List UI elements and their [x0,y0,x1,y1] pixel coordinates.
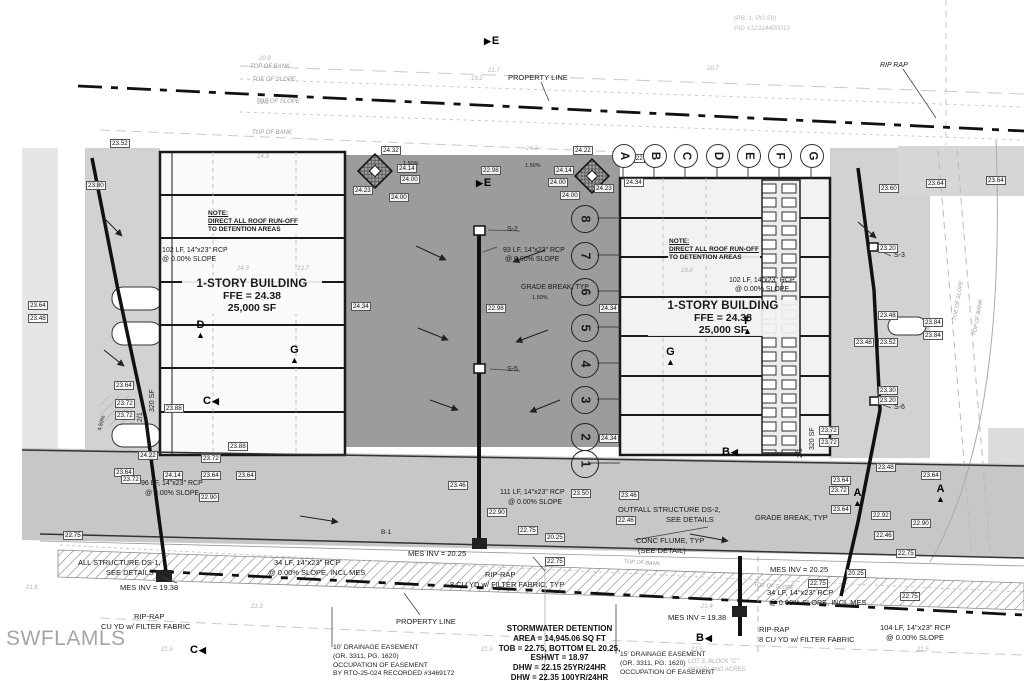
unit-number: 2 [578,434,592,441]
section-marker-A: A▲ [936,484,945,504]
elevation-callout: 21.5 [916,647,930,654]
elevation-callout: 23.88 [164,404,184,413]
elevation-callout: 22.90 [911,519,931,528]
section-letter: E [492,36,499,47]
elevation-callout: 22.46 [616,516,636,525]
annotation: GRADE BREAK, TYP [755,514,828,522]
grid-letter: G [806,152,818,161]
elevation-callout: 24.3 [256,154,270,161]
elevation-callout: 23.72 [819,438,839,447]
annotation: TOE OF SLOPE [252,77,296,84]
annotation: 4.50% [97,415,107,432]
annotation: RIP-RAP [134,613,164,621]
right-building-label: 1-STORY BUILDING FFE = 24.38 25,000 SF [648,300,798,336]
annotation: OUTFALL STRUCTURE DS-2, [618,506,721,514]
annotation: MES INV = 19.38 [120,584,178,592]
elevation-callout: 23.60 [879,184,899,193]
annotation: @ 0.00% SLOPE, INCL MES [769,599,866,607]
annotation: TOE OF SLOPE [256,99,300,106]
annotation: TOP OF BANK [250,64,290,71]
annotation: SEE DETAILS [666,516,714,524]
annotation: @ 0.00% SLOPE [505,256,559,264]
unit-bubble-2: 2 [571,423,599,451]
annotation: @ 0.00% SLOPE [162,256,216,264]
unit-bubble-7: 7 [571,242,599,270]
elevation-callout: 22.92 [871,511,891,520]
annotation: 8 CU YD w/ FILTER FABRIC, TYP [450,581,564,589]
elevation-callout: 23.84 [923,318,943,327]
elevation-callout: 23.72 [115,399,135,408]
elevation-callout: 23.64 [921,471,941,480]
elevation-callout: 23.64 [831,505,851,514]
annotation: PROPERTY LINE [508,74,568,82]
elevation-callout: 21.5 [480,647,494,654]
elevation-callout: 22.75 [63,531,83,540]
elevation-callout: 23.72 [819,426,839,435]
unit-bubble-8: 8 [571,205,599,233]
unit-bubble-5: 5 [571,314,599,342]
annotation: PROPERTY LINE [396,618,456,626]
elevation-callout: 24.23 [353,186,373,195]
annotation: 102 LF, 14"x23" RCP [162,247,228,255]
annotation: TOE OF SLOPE [952,280,965,321]
elevation-callout: 23.72 [121,475,141,484]
section-marker-G: G▲ [666,347,675,367]
elevation-callout: 23.46 [448,481,468,490]
elevation-callout: 22.90 [487,508,507,517]
elevation-callout: 21.3 [250,604,264,611]
elevation-callout: 23.46 [619,491,639,500]
annotation: S-5 [507,366,518,374]
annotation: @ 0.00% SLOPE, INCL MES [268,569,365,577]
annotation: @ 0.00% SLOPE [735,286,789,294]
section-arrow-icon: ▲ [743,327,752,336]
annotation: 8 CU YD w/ FILTER FABRIC [759,636,855,644]
grid-bubble-A: A [612,144,636,168]
elevation-callout: 24.00 [560,191,580,200]
section-arrow-icon: ▲ [290,356,299,365]
elevation-callout: 24.32 [381,146,401,155]
section-marker-E: ▶E [476,178,491,189]
elevation-callout: 23.8 [680,268,694,275]
elevation-callout: 20.25 [846,569,866,578]
elevation-callout: 24.3 [236,266,250,273]
section-arrow-icon: ◀ [731,448,738,457]
grid-letter: B [649,152,661,160]
annotation: 320 SF [149,389,157,412]
grid-bubble-F: F [768,144,792,168]
elevation-callout: 21.8 [25,585,39,592]
elevation-callout: 23.7 [296,266,310,273]
grid-bubble-G: G [800,144,824,168]
annotation-layer: (PB. 1, PG 59) PID #12314400010 NOTE: DI… [0,0,1024,681]
elevation-callout: 24.00 [400,175,420,184]
section-marker-E: ▶E [484,36,499,47]
section-arrow-icon: ▲ [936,495,945,504]
elevation-callout: 24.34 [599,434,619,443]
annotation: 34 LF, 14"x23" RCP [274,559,340,567]
annotation: 320 SF [809,427,817,450]
unit-bubble-4: 4 [571,350,599,378]
elevation-callout: 23.88 [228,442,248,451]
elevation-callout: 23.64 [236,471,256,480]
elevation-callout: 23.84 [923,331,943,340]
elevation-callout: 21.7 [487,68,501,75]
section-marker-F: F▲ [743,316,752,336]
section-marker-D: D▲ [196,320,205,340]
annotation: S-6 [894,404,905,412]
elevation-callout: 23.48 [878,311,898,320]
elevation-callout: 21.4 [700,604,714,611]
section-arrow-icon: ▶ [476,179,483,188]
annotation: 1.50% [525,163,541,169]
unit-bubble-1: 1 [571,450,599,478]
elevation-callout: 23.48 [876,463,896,472]
annotation: RIP-RAP [759,626,789,634]
section-marker-A: A▲ [853,488,862,508]
annotation: 1.50% [403,161,419,167]
elevation-callout: 21.5 [160,647,174,654]
section-marker-G: G▲ [290,345,299,365]
unit-number: 5 [578,325,592,332]
drainage-easement-note-left: 10' DRAINAGE EASEMENT (OR. 3311, PG. 162… [333,644,454,679]
grid-letter: A [618,152,630,160]
annotation: S-2 [507,226,518,234]
annotation: 102 LF, 14"x23" RCP [729,277,795,285]
elevation-callout: 22.98 [481,166,501,175]
section-letter: B [696,633,704,644]
section-arrow-icon: ◀ [705,634,712,643]
unit-bubble-3: 3 [571,386,599,414]
section-marker-C: C◀ [190,645,206,656]
elevation-callout: 19.2 [470,76,484,83]
grid-letter: F [774,152,786,159]
elevation-callout: 23.30 [878,386,898,395]
elevation-callout: 23.72 [115,411,135,420]
elevation-callout: 23.50 [571,489,591,498]
unit-number: 1 [578,461,592,468]
annotation: MES INV = 20.25 [408,550,466,558]
elevation-callout: 24.34 [624,178,644,187]
section-arrow-icon: ◀ [199,646,206,655]
annotation: ALL STRUCTURE DS-1, [78,559,161,567]
grid-bubble-E: E [737,144,761,168]
elevation-callout: 23.64 [986,176,1006,185]
annotation: TOP OF BANK [972,299,984,336]
elevation-callout: 24.00 [389,193,409,202]
annotation: B-1 [381,529,391,536]
annotation: 111 LF, 14"x23" RCP [500,489,565,497]
elevation-callout: 20.8 [258,56,272,63]
plat-note: LOT 3, BLOCK "C" WOODLAND ACRES [688,658,745,675]
elevation-callout: 22.75 [545,557,565,566]
plat-book-ref: (PB. 1, PG 59) [734,14,790,24]
right-building-note: NOTE: DIRECT ALL ROOF RUN-OFF TO DETENTI… [668,238,760,262]
grid-letter: C [680,152,692,160]
section-arrow-icon: ▲ [853,499,862,508]
annotation: CONC FLUME, TYP [636,537,704,545]
elevation-callout: 23.48 [28,314,48,323]
elevation-callout: 24.34 [599,304,619,313]
elevation-callout: 24.23 [594,184,614,193]
section-letter: B [722,447,730,458]
section-marker-C: C◀ [203,396,219,407]
elevation-callout: 22.98 [486,304,506,313]
annotation: RIP-RAP [485,571,515,579]
elevation-callout: 23.52 [878,338,898,347]
elevation-callout: 23.64 [114,381,134,390]
annotation: S-3 [894,252,905,260]
annotation: @ 0.00% SLOPE [145,490,199,498]
elevation-callout: 23.64 [926,179,946,188]
left-building-note: NOTE: DIRECT ALL ROOF RUN-OFF TO DETENTI… [207,210,299,234]
unit-number: 7 [578,253,592,260]
elevation-callout: 22.75 [808,579,828,588]
annotation: 93 LF, 14"x23" RCP [503,247,565,255]
elevation-callout: 24.34 [351,302,371,311]
annotation: MES INV = 19.38 [668,614,726,622]
annotation: TOP OF BANK [252,130,292,137]
section-marker-B: B◀ [722,447,738,458]
elevation-callout: 24.14 [554,166,574,175]
elevation-callout: 24.14 [163,471,183,480]
unit-number: 3 [578,397,592,404]
elevation-callout: 24.3 [525,146,539,153]
elevation-callout: 21.5 [690,647,704,654]
elevation-callout: 23.48 [854,338,874,347]
annotation: 2/1 [797,448,805,458]
elevation-callout: 22.75 [900,592,920,601]
unit-number: 8 [578,216,592,223]
unit-bubble-6: 6 [571,278,599,306]
grid-bubble-D: D [706,144,730,168]
annotation: TOP OF BANK [624,559,661,568]
grid-bubble-B: B [643,144,667,168]
annotation: @ 0.00% SLOPE [886,634,944,642]
elevation-callout: 24.22 [573,146,593,155]
section-letter: C [203,396,211,407]
annotation: (SEE DETAIL) [638,547,686,555]
section-arrow-icon: ▲ [196,331,205,340]
parcel-note: (PB. 1, PG 59) PID #12314400010 [734,14,790,34]
annotation: 2/1 [137,412,145,422]
elevation-callout: 20.7 [706,66,720,73]
left-building-label: 1-STORY BUILDING FFE = 24.38 25,000 SF [182,278,322,314]
section-arrow-icon: ▲ [666,358,675,367]
elevation-callout: 22.75 [518,526,538,535]
annotation: CU YD w/ FILTER FABRIC [101,623,190,631]
grid-bubble-C: C [674,144,698,168]
grid-letter: D [712,152,724,160]
elevation-callout: 22.46 [874,531,894,540]
elevation-callout: 22.75 [896,549,916,558]
annotation: @ 0.00% SLOPE [508,499,562,507]
elevation-callout: 20.25 [545,533,565,542]
elevation-callout: 23.80 [86,181,106,190]
elevation-callout: 23.64 [28,301,48,310]
unit-number: 6 [578,289,592,296]
section-arrow-icon: ▶ [484,37,491,46]
section-letter: C [190,645,198,656]
elevation-callout: 23.64 [831,476,851,485]
section-letter: E [484,178,491,189]
annotation: RIP RAP [880,62,908,70]
elevation-callout: 23.72 [829,486,849,495]
elevation-callout: 24.00 [548,178,568,187]
elevation-callout: 22.90 [199,493,219,502]
grid-letter: E [743,152,755,160]
section-arrow-icon: ◀ [212,397,219,406]
elevation-callout: 23.64 [201,471,221,480]
annotation: SEE DETAILS [106,569,154,577]
elevation-callout: 23.52 [110,139,130,148]
parcel-id: PID #12314400010 [734,24,790,34]
annotation: 96 LF, 14"x23" RCP [141,480,203,488]
unit-number: 4 [578,361,592,368]
section-marker-B: B◀ [696,633,712,644]
elevation-callout: 24.22 [138,451,158,460]
annotation: 1.50% [532,295,548,301]
annotation: 104 LF, 14"x23" RCP [880,624,950,632]
elevation-callout: 23.72 [201,454,221,463]
site-plan-sheet: (PB. 1, PG 59) PID #12314400010 NOTE: DI… [0,0,1024,681]
annotation: MES INV = 20.25 [770,566,828,574]
